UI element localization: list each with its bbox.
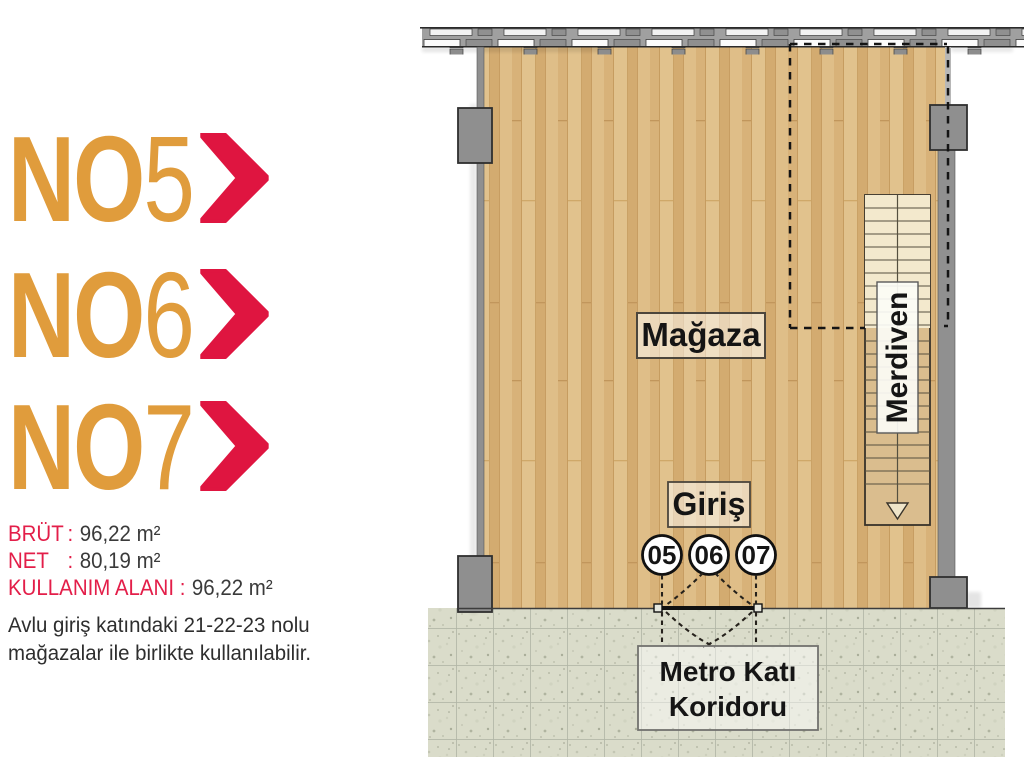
unit-title-no5: NO5 xyxy=(8,118,269,240)
column xyxy=(458,556,492,612)
unit-prefix: NO xyxy=(8,247,143,383)
unit-number: 7 xyxy=(143,379,194,515)
unit-prefix: NO xyxy=(8,379,143,515)
spec-brut: BRÜT:96,22 m² xyxy=(8,520,273,547)
floor-plan: Merdiven Mağaza Giriş 05 06 07 xyxy=(420,0,1024,771)
unit-circle-05-label: 05 xyxy=(648,540,677,570)
spec-separator: : xyxy=(68,521,74,546)
spec-label: BRÜT xyxy=(8,520,68,547)
corridor-label-group: Metro Katı Koridoru xyxy=(638,646,818,730)
entrance-label-group: Giriş xyxy=(668,482,750,527)
spec-label: KULLANIM ALANI xyxy=(8,574,174,601)
spec-label: NET xyxy=(8,547,68,574)
unit-title-no7: NO7 xyxy=(8,386,269,508)
unit-circle-06-label: 06 xyxy=(695,540,724,570)
unit-circle-07-label: 07 xyxy=(742,540,771,570)
spec-separator: : xyxy=(180,575,186,600)
chevron-right-icon xyxy=(200,269,268,359)
chevron-right-icon xyxy=(200,133,268,223)
room-label: Mağaza xyxy=(641,316,761,353)
area-specs: BRÜT:96,22 m² NET:80,19 m² KULLANIM ALAN… xyxy=(8,520,273,601)
room-label-group: Mağaza xyxy=(637,313,765,358)
staircase: Merdiven xyxy=(865,195,930,525)
unit-number: 6 xyxy=(143,247,194,383)
info-panel: NO5 NO6 NO7 BRÜT:96,22 m² NET:80,19 m² K… xyxy=(0,0,420,771)
usage-note-line1: Avlu giriş katındaki 21-22-23 nolu xyxy=(8,613,310,637)
top-facade-wall xyxy=(420,27,1024,55)
chevron-right-icon xyxy=(200,401,268,491)
corridor-label-line1: Metro Katı xyxy=(660,656,797,687)
spec-value: 80,19 m² xyxy=(80,548,161,573)
unit-circles: 05 06 07 xyxy=(643,536,776,575)
unit-prefix: NO xyxy=(8,111,143,247)
usage-note: Avlu giriş katındaki 21-22-23 nolu mağaz… xyxy=(8,612,311,667)
unit-title-no6: NO6 xyxy=(8,254,269,376)
column xyxy=(930,577,967,608)
column xyxy=(458,108,492,163)
unit-number: 5 xyxy=(143,111,194,247)
spec-kullanim-alani: KULLANIM ALANI :96,22 m² xyxy=(8,574,273,601)
column xyxy=(930,105,967,150)
entrance-label: Giriş xyxy=(673,486,746,522)
spec-value: 96,22 m² xyxy=(192,575,273,600)
usage-note-line2: mağazalar ile birlikte kullanılabilir. xyxy=(8,641,311,665)
corridor-label-line2: Koridoru xyxy=(669,691,787,722)
stairs-label: Merdiven xyxy=(881,292,914,424)
spec-net: NET:80,19 m² xyxy=(8,547,273,574)
spec-value: 96,22 m² xyxy=(80,521,161,546)
spec-separator: : xyxy=(68,548,74,573)
